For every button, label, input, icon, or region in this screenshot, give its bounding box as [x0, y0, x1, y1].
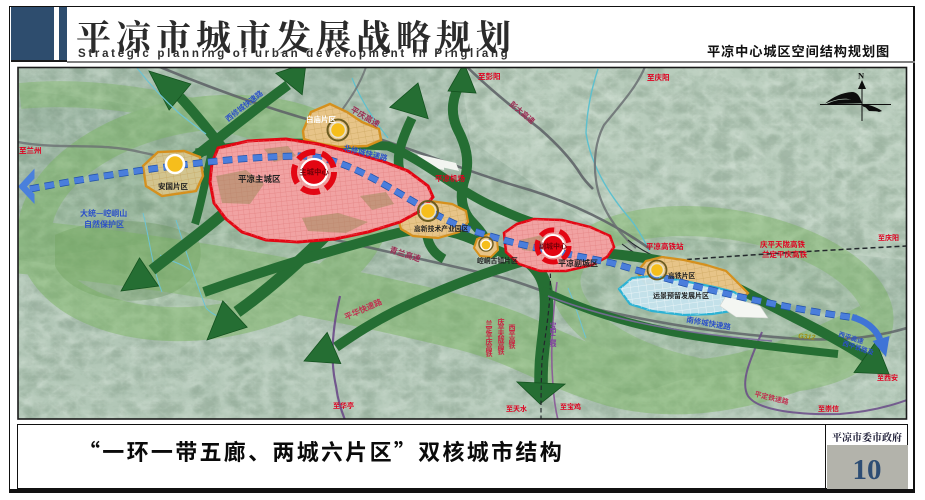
svg-text:兰定平庆高铁: 兰定平庆高铁	[484, 319, 494, 358]
svg-text:平凉副城区: 平凉副城区	[558, 258, 598, 269]
svg-text:白庙片区: 白庙片区	[306, 114, 336, 125]
svg-text:高铁片区: 高铁片区	[668, 270, 695, 280]
svg-text:大统—崆峒山: 大统—崆峒山	[80, 208, 127, 219]
svg-text:远景预留发展片区: 远景预留发展片区	[653, 291, 709, 301]
svg-text:至华亭: 至华亭	[333, 401, 354, 411]
svg-text:平凉机场: 平凉机场	[435, 173, 465, 184]
svg-text:自然保护区: 自然保护区	[84, 219, 124, 230]
svg-text:至庆阳: 至庆阳	[878, 233, 899, 243]
svg-text:宝中二线: 宝中二线	[548, 321, 558, 347]
svg-text:至彭阳: 至彭阳	[478, 71, 501, 82]
svg-text:至天水: 至天水	[506, 404, 527, 414]
svg-text:庆平天陇高铁: 庆平天陇高铁	[496, 317, 506, 356]
svg-text:至庆阳: 至庆阳	[647, 72, 670, 83]
svg-text:兰定平庆高铁: 兰定平庆高铁	[762, 249, 807, 260]
svg-text:高新技术产业园区: 高新技术产业园区	[414, 223, 469, 233]
svg-text:副城中心: 副城中心	[539, 242, 567, 252]
svg-text:西平高铁: 西平高铁	[507, 324, 517, 350]
svg-text:安国片区: 安国片区	[158, 181, 188, 192]
svg-text:主城中心: 主城中心	[299, 167, 329, 178]
svg-text:至宝鸡: 至宝鸡	[560, 402, 581, 412]
svg-text:至崇信: 至崇信	[818, 404, 839, 414]
svg-text:N: N	[858, 71, 865, 81]
svg-text:平凉主城区: 平凉主城区	[238, 173, 281, 185]
svg-text:至西安: 至西安	[877, 373, 898, 383]
svg-text:平凉高铁站: 平凉高铁站	[646, 241, 684, 252]
svg-text:至兰州: 至兰州	[19, 145, 42, 156]
svg-text:崆峒古镇片区: 崆峒古镇片区	[477, 255, 518, 265]
